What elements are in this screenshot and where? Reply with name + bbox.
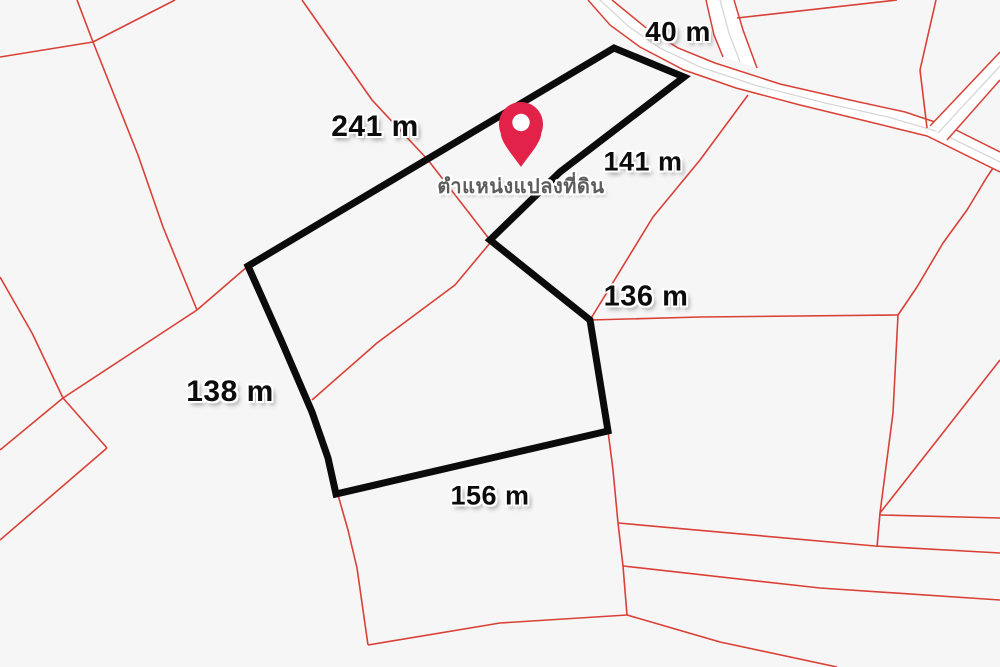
map-svg	[0, 0, 1000, 667]
cadastral-map[interactable]: 40 m241 m141 m136 m138 m156 mตำแหน่งแปลง…	[0, 0, 1000, 667]
location-pin-hole	[512, 114, 529, 131]
